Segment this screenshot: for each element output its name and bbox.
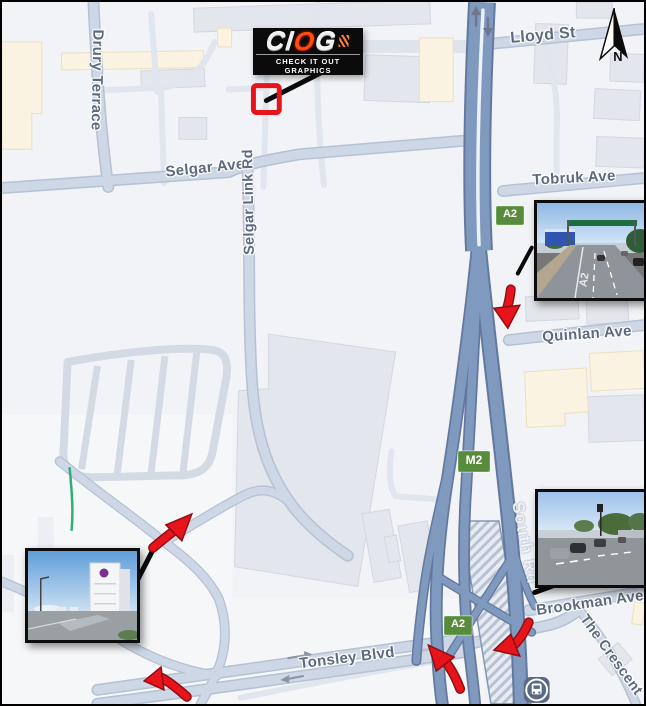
- street-view-inset-east: [535, 489, 646, 588]
- street-view-inset-south-west: [25, 548, 140, 643]
- transit-station-icon: [524, 677, 550, 703]
- business-logo: CIOG CHECK IT OUT GRAPHICS: [253, 28, 363, 75]
- road-marking-a2: A2: [577, 272, 591, 288]
- street-view-inset-north-east: A2: [534, 200, 646, 301]
- logo-letter: G: [314, 28, 338, 54]
- street-label-selgar-link-rd: Selgar Link Rd: [240, 149, 258, 255]
- route-badge-m2: M2: [458, 451, 490, 472]
- map-flyer: N Lloyd St Tobruk Ave Quinlan Ave Selgar…: [0, 0, 646, 706]
- route-badge-a2-north: A2: [496, 206, 524, 225]
- street-view-scene: [538, 492, 646, 585]
- street-label-drury-terrace: Drury Terrace: [88, 29, 107, 130]
- logo-brand: CIOG: [265, 28, 351, 54]
- logo-slashes-icon: [339, 35, 350, 47]
- street-view-scene: [28, 551, 137, 640]
- logo-caption: CHECK IT OUT GRAPHICS: [256, 54, 360, 75]
- route-badge-a2-south: A2: [444, 616, 472, 635]
- compass-label: N: [613, 49, 622, 64]
- street-view-scene: A2: [537, 203, 646, 298]
